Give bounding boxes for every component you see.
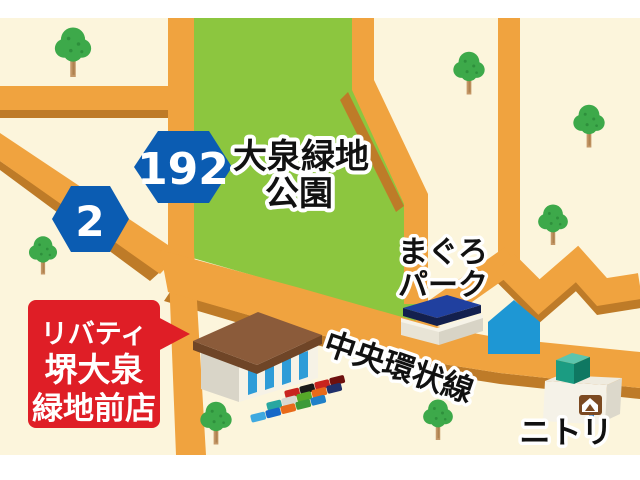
store-access-map: 192 2 大泉緑地 公園 まぐろ パーク 中央環状線 ニトリ リバティ 堺大泉… [0, 0, 640, 480]
route-badge-2-number: 2 [75, 197, 104, 246]
frame-bottom [0, 455, 640, 480]
route-badge-192-number: 192 [137, 144, 229, 195]
maguro-park-label-line1: まぐろ [398, 235, 488, 270]
park-label-line1: 大泉緑地 [233, 137, 369, 177]
park-label-line2: 公園 [265, 174, 333, 214]
store-callout-line2: 堺大泉 [45, 350, 144, 389]
store-callout-line3: 緑地前店 [32, 391, 156, 427]
store-callout-line1: リバティ [41, 319, 147, 350]
nitori-label: ニトリ [520, 415, 613, 451]
frame-top [0, 0, 640, 18]
road-right-vertical [498, 18, 520, 270]
maguro-park-label-line2: パーク [398, 268, 488, 303]
road-top-horizontal [0, 86, 192, 110]
map-canvas: 192 2 大泉緑地 公園 まぐろ パーク 中央環状線 ニトリ リバティ 堺大泉… [0, 0, 640, 480]
